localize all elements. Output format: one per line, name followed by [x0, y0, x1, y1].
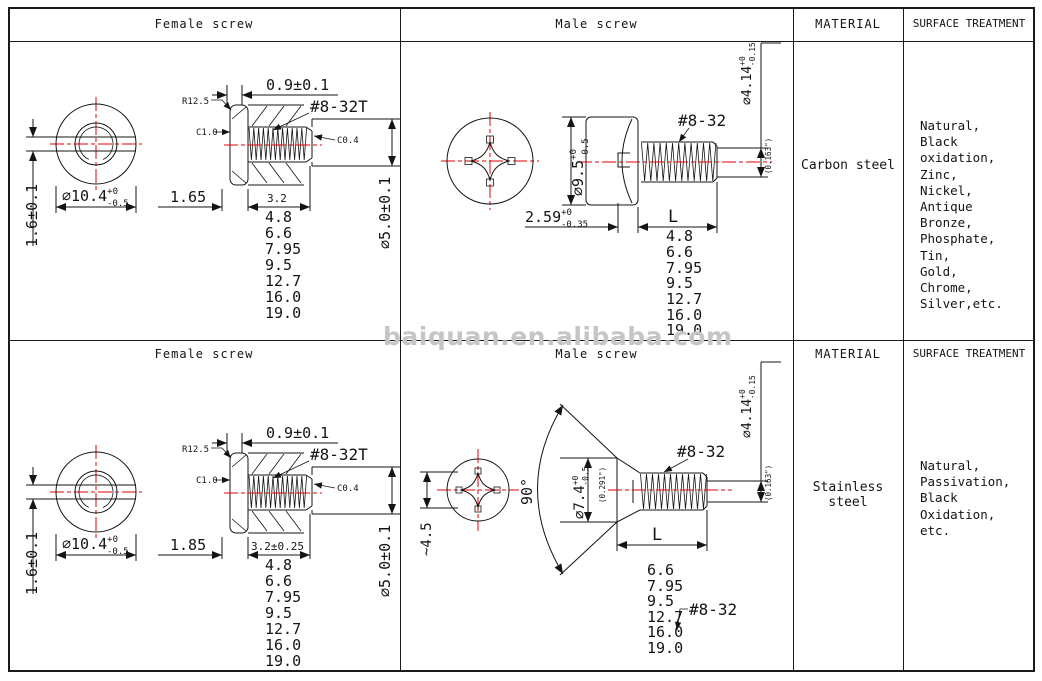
female1-outer-dia-label: ∅10.4+0-0.5	[62, 187, 129, 209]
male2-thread-label: #8-32	[677, 442, 725, 461]
female2-callouts: R12.5 C1.0 #8-32T C0.4	[182, 445, 368, 494]
female-screw-drawing-row2: 1.6±0.1 ∅10.4+0-0.5 0.9±0.1 R12.5 C1.0	[8, 341, 400, 674]
male2-shaft-inch-label: (0.163")	[764, 465, 773, 501]
female-screw-drawing-row1: 1.6±0.1 ∅10.4+0-0.5 0.9±0.1 R12.5 C1.0	[8, 41, 400, 341]
male1-front-view	[441, 112, 539, 210]
female1-base-len-label: 1.65	[170, 188, 206, 206]
female1-thread-label: #8-32T	[310, 97, 368, 116]
male1-shaft-dia-dim: ∅4.14+0-0.15 (0.163")	[717, 42, 781, 177]
male-screw-drawing-row2: ~4.5 90° ∅7.4+0-0.5 (0.291") #8-32	[400, 341, 793, 674]
female2-thread-label: #8-32T	[310, 445, 368, 464]
female1-callouts: R12.5 C1.0 #8-32T C0.4	[182, 97, 368, 146]
male2-angle-label: 90°	[518, 478, 536, 505]
material-value-row1: Carbon steel	[793, 158, 903, 173]
female2-slot-label: 1.6±0.1	[23, 532, 41, 595]
female1-slot-dim: 1.6±0.1	[23, 119, 56, 247]
male2-cross-width-label: ~4.5	[419, 522, 435, 556]
male1-thread-label: #8-32	[678, 111, 726, 130]
male2-thread-callout: #8-32	[664, 442, 725, 472]
header-material-row1: MATERIAL	[793, 7, 903, 41]
male1-head-dia-label: ∅9.5+0-0.5	[569, 138, 591, 196]
male1-side-view	[578, 117, 772, 205]
male2-thread2-label: #8-32	[689, 600, 737, 619]
male1-thread-callout: #8-32	[678, 111, 726, 142]
column-divider-2	[793, 7, 794, 670]
female1-chamfer-face-label: C1.0	[196, 128, 218, 138]
header-surface-row1: SURFACE TREATMENT	[903, 7, 1035, 41]
watermark: baiquan.en.alibaba.com	[383, 322, 733, 351]
female2-outer-dia-label: ∅10.4+0-0.5	[62, 535, 129, 557]
male2-cross-width-dim: ~4.5	[419, 472, 458, 556]
female2-slot-dim: 1.6±0.1	[23, 467, 56, 595]
male2-head-dia-label: ∅7.4+0-0.5	[571, 466, 590, 519]
female1-length-dims: 1.65 3.2 4.8 6.6 7.95 9.5 12.7 16.0 19.0	[158, 166, 310, 322]
male2-length-dim: L 6.6 7.95 9.5 12.7 16.0 19.0	[617, 510, 707, 657]
female2-chamfer-end-label: C0.4	[337, 484, 359, 494]
male2-front-view	[437, 449, 519, 531]
female1-rim-label: 0.9±0.1	[266, 76, 329, 94]
male2-head-inch-label: (0.291")	[598, 467, 607, 503]
screw-spec-sheet: Female screw Male screw MATERIAL SURFACE…	[0, 0, 1042, 681]
female2-length-dims: 1.85 3.2±0.25 4.8 6.6 7.95 9.5 12.7 16.0…	[158, 514, 310, 670]
male1-shaft-inch-label: (0.163")	[764, 138, 773, 174]
material-value-row2: Stainless steel	[793, 480, 903, 510]
male1-head-dia-dim: ∅9.5+0-0.5	[562, 117, 591, 205]
male2-shaft-dia-dim: ∅4.14+0-0.15 (0.163")	[707, 362, 781, 502]
male1-bottom-dims: 2.59+0-0.35 L 4.8 6.6 7.95 9.5 12.7 16.0…	[525, 182, 717, 339]
header-material-row2: MATERIAL	[793, 342, 903, 366]
female2-thread-len-label: 3.2±0.25	[251, 540, 304, 553]
header-female-screw-row1: Female screw	[8, 7, 400, 41]
surface-treatment-list-row2: Natural, Passivation, Black Oxidation, e…	[920, 458, 1032, 539]
male1-shaft-dia-label: ∅4.14+0-0.15	[738, 42, 757, 105]
male2-length-label: L	[652, 525, 662, 545]
male2-shaft-dia-label: ∅4.14+0-0.15	[738, 375, 757, 438]
male2-side-view	[608, 458, 732, 522]
female1-slot-label: 1.6±0.1	[23, 184, 41, 247]
male-screw-drawing-row1: ∅9.5+0-0.5 #8-32 ∅4.14+0-0.15 (0.163") 2…	[400, 41, 793, 341]
column-divider-3	[903, 7, 904, 670]
male2-length-option: 19.0	[647, 639, 683, 657]
female2-outer-dia-dim: ∅10.4+0-0.5	[56, 534, 136, 561]
female2-front-view	[50, 445, 142, 539]
female2-side-view	[224, 453, 322, 533]
female2-radius-label: R12.5	[182, 445, 209, 455]
female1-outer-dia-dim: ∅10.4+0-0.5	[56, 186, 136, 213]
female2-base-len-label: 1.85	[170, 536, 206, 554]
female2-length-option: 19.0	[265, 652, 301, 670]
female2-chamfer-face-label: C1.0	[196, 476, 218, 486]
header-surface-row2: SURFACE TREATMENT	[903, 342, 1035, 366]
female1-side-view	[224, 105, 322, 185]
female1-body-dia-label: ∅5.0±0.1	[376, 177, 394, 249]
female1-thread-len-label: 3.2	[267, 192, 287, 205]
female1-radius-label: R12.5	[182, 97, 209, 107]
female1-front-view	[50, 97, 142, 191]
female2-rim-label: 0.9±0.1	[266, 424, 329, 442]
female2-body-dia-label: ∅5.0±0.1	[376, 525, 394, 597]
female1-length-option: 19.0	[265, 304, 301, 322]
header-male-screw-row1: Male screw	[400, 7, 793, 41]
male1-length-label: L	[668, 207, 678, 227]
male2-thread2-callout: #8-32	[677, 600, 737, 630]
female1-chamfer-end-label: C0.4	[337, 136, 359, 146]
surface-treatment-list-row1: Natural, Black oxidation, Zinc, Nickel, …	[920, 118, 1032, 312]
